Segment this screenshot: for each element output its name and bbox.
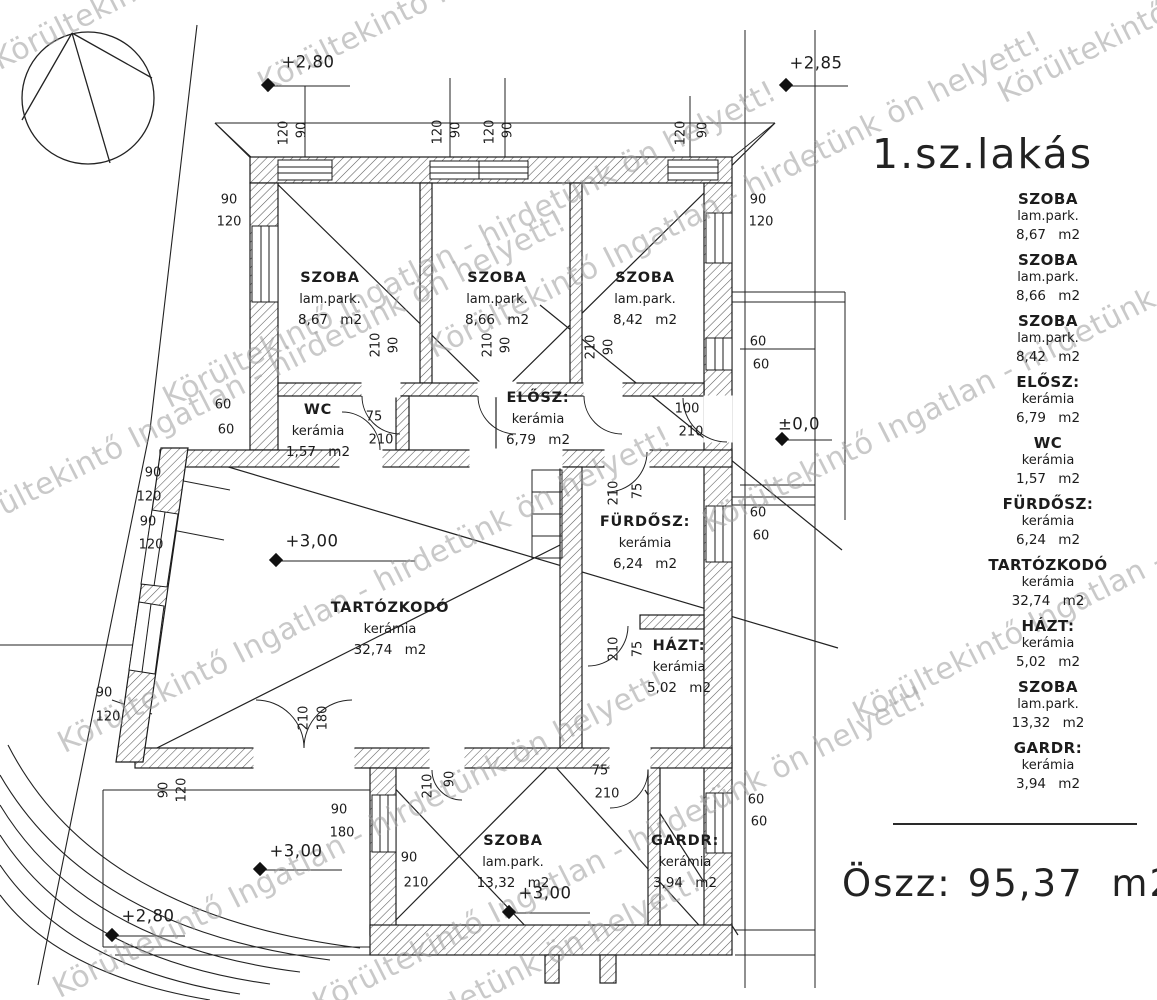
legend-item-floor: kerámia: [1016, 391, 1080, 409]
legend-item-name: WC: [1016, 434, 1080, 452]
legend-item-area: 1,57 m2: [1016, 470, 1080, 488]
legend-item-area: 6,79 m2: [1016, 409, 1080, 427]
legend-item-area: 32,74 m2: [988, 592, 1107, 610]
legend-item-floor: lam.park.: [1016, 269, 1080, 287]
legend-item: SZOBAlam.park.13,32 m2: [1012, 678, 1085, 732]
legend-item-name: FÜRDŐSZ:: [1003, 495, 1094, 513]
legend-item-name: SZOBA: [1012, 678, 1085, 696]
legend-item-name: HÁZT:: [1016, 617, 1080, 635]
legend-item-area: 3,94 m2: [1014, 775, 1082, 793]
legend-divider: [893, 823, 1137, 825]
legend-item: FÜRDŐSZ:kerámia6,24 m2: [1003, 495, 1094, 549]
legend-item-name: GARDR:: [1014, 739, 1082, 757]
legend-item-area: 5,02 m2: [1016, 653, 1080, 671]
legend-item: SZOBAlam.park.8,42 m2: [1016, 312, 1080, 366]
legend-item-name: SZOBA: [1016, 312, 1080, 330]
legend-panel: SZOBAlam.park.8,67 m2SZOBAlam.park.8,66 …: [928, 190, 1157, 793]
legend-item-name: SZOBA: [1016, 251, 1080, 269]
total-area-value: 95,37 m2: [968, 862, 1157, 905]
legend-item-floor: lam.park.: [1016, 330, 1080, 348]
legend-item: SZOBAlam.park.8,66 m2: [1016, 251, 1080, 305]
legend-item: TARTÓZKODÓkerámia32,74 m2: [988, 556, 1107, 610]
legend-item: WCkerámia1,57 m2: [1016, 434, 1080, 488]
legend-item-floor: kerámia: [1003, 513, 1094, 531]
legend-item-floor: kerámia: [988, 574, 1107, 592]
roof-lines: [143, 123, 842, 955]
legend-item-floor: kerámia: [1016, 452, 1080, 470]
legend-item-floor: kerámia: [1016, 635, 1080, 653]
legend-item: ELŐSZ:kerámia6,79 m2: [1016, 373, 1080, 427]
total-area: Öszz:95,37 m2: [842, 862, 1157, 905]
north-arrow-icon: [22, 32, 154, 164]
door-openings: [254, 382, 732, 769]
legend-item-area: 6,24 m2: [1003, 531, 1094, 549]
legend-item: HÁZT:kerámia5,02 m2: [1016, 617, 1080, 671]
legend-item-floor: lam.park.: [1012, 696, 1085, 714]
legend-item-floor: lam.park.: [1016, 208, 1080, 226]
legend-item-name: SZOBA: [1016, 190, 1080, 208]
page-title: 1.sz.lakás: [872, 130, 1093, 178]
legend-item: SZOBAlam.park.8,67 m2: [1016, 190, 1080, 244]
legend-item-name: TARTÓZKODÓ: [988, 556, 1107, 574]
legend-item-area: 8,67 m2: [1016, 226, 1080, 244]
floor-plan-canvas: Körültekintő Ingatlan - hirdetünk ön hel…: [0, 0, 1157, 1000]
legend-item-area: 13,32 m2: [1012, 714, 1085, 732]
total-area-label: Öszz:: [842, 862, 952, 905]
legend-item-area: 8,42 m2: [1016, 348, 1080, 366]
legend-item-area: 8,66 m2: [1016, 287, 1080, 305]
stairs-symbol: [532, 470, 562, 558]
legend-item-floor: kerámia: [1014, 757, 1082, 775]
legend-item-name: ELŐSZ:: [1016, 373, 1080, 391]
legend-item: GARDR:kerámia3,94 m2: [1014, 739, 1082, 793]
